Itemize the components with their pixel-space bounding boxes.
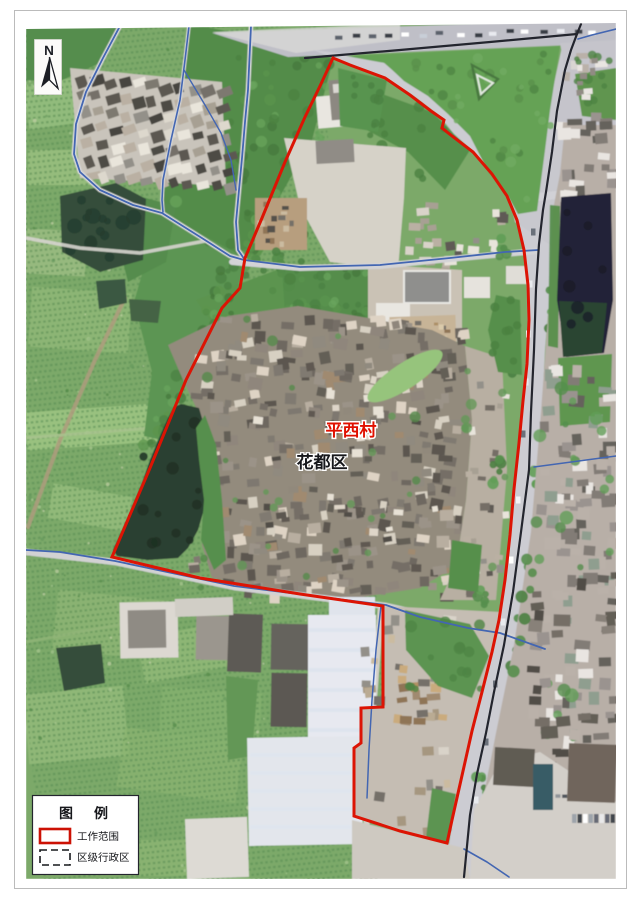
svg-text:工作范围: 工作范围	[77, 831, 119, 843]
svg-text:例: 例	[94, 805, 108, 821]
svg-text:平西村: 平西村	[326, 421, 377, 440]
svg-text:图: 图	[59, 805, 73, 821]
svg-text:花都区: 花都区	[297, 453, 348, 472]
svg-text:区级行政区: 区级行政区	[77, 852, 130, 864]
svg-text:N: N	[44, 43, 54, 58]
